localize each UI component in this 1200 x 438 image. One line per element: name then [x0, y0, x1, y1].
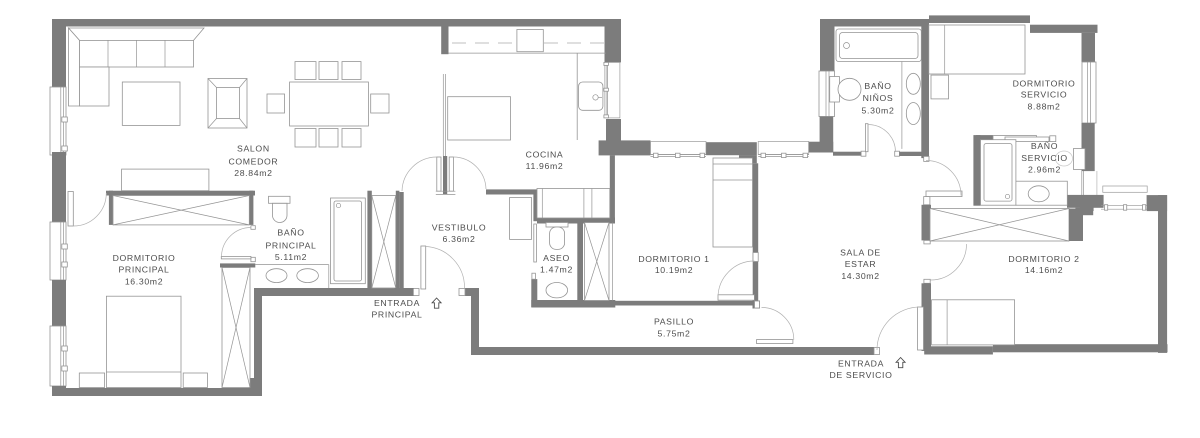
svg-text:16.30m2: 16.30m2: [125, 276, 163, 286]
svg-text:5.30m2: 5.30m2: [862, 106, 895, 116]
svg-text:BAÑO: BAÑO: [864, 81, 891, 91]
svg-text:SERVICIO: SERVICIO: [1021, 153, 1068, 163]
svg-text:VESTIBULO: VESTIBULO: [432, 222, 487, 232]
svg-text:COCINA: COCINA: [526, 150, 564, 160]
svg-text:DORMITORIO 2: DORMITORIO 2: [1008, 254, 1079, 264]
svg-text:BAÑO: BAÑO: [1031, 141, 1058, 151]
svg-text:COMEDOR: COMEDOR: [228, 156, 278, 166]
svg-text:ENTRADA: ENTRADA: [838, 358, 884, 368]
svg-text:5.75m2: 5.75m2: [658, 328, 691, 338]
svg-text:ASEO: ASEO: [543, 253, 570, 263]
svg-text:1.47m2: 1.47m2: [540, 265, 573, 275]
svg-text:5.11m2: 5.11m2: [275, 252, 307, 262]
svg-text:6.36m2: 6.36m2: [443, 234, 476, 244]
svg-text:14.30m2: 14.30m2: [841, 271, 879, 281]
svg-text:BAÑO: BAÑO: [277, 228, 304, 238]
svg-text:DE SERVICIO: DE SERVICIO: [830, 370, 893, 380]
svg-text:PASILLO: PASILLO: [654, 316, 694, 326]
svg-text:SALA DE: SALA DE: [840, 248, 881, 258]
svg-text:8.88m2: 8.88m2: [1028, 102, 1061, 112]
svg-text:10.19m2: 10.19m2: [655, 265, 693, 275]
svg-text:DORMITORIO: DORMITORIO: [113, 253, 176, 263]
svg-text:PRINCIPAL: PRINCIPAL: [118, 265, 169, 275]
svg-text:2.96m2: 2.96m2: [1028, 165, 1061, 175]
svg-text:ESTAR: ESTAR: [845, 259, 877, 269]
svg-text:DORMITORIO 1: DORMITORIO 1: [638, 254, 709, 264]
svg-text:NIÑOS: NIÑOS: [863, 93, 894, 103]
svg-text:PRINCIPAL: PRINCIPAL: [371, 309, 422, 319]
svg-text:14.16m2: 14.16m2: [1025, 265, 1063, 275]
svg-text:DORMITORIO: DORMITORIO: [1013, 78, 1076, 88]
svg-text:11.96m2: 11.96m2: [526, 161, 564, 171]
svg-text:PRINCIPAL: PRINCIPAL: [265, 240, 316, 250]
svg-text:SERVICIO: SERVICIO: [1021, 90, 1068, 100]
svg-text:SALON: SALON: [237, 144, 270, 154]
svg-text:ENTRADA: ENTRADA: [374, 298, 420, 308]
svg-text:28.84m2: 28.84m2: [234, 168, 272, 178]
